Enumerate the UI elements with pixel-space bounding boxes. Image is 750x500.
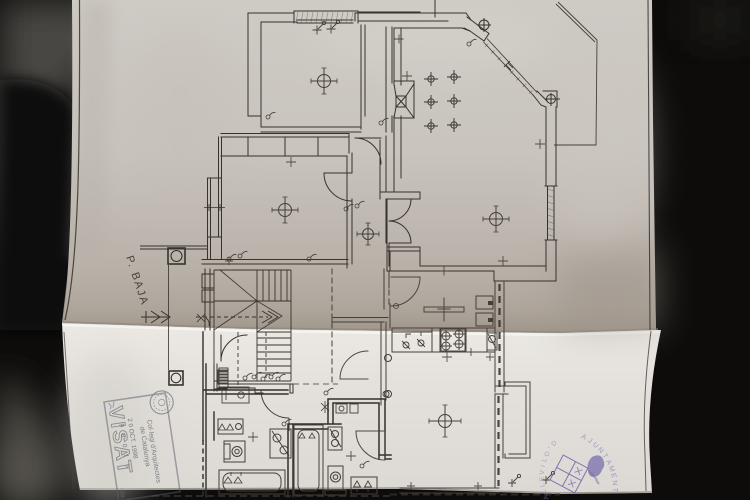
svg-text:N: N xyxy=(611,480,618,486)
